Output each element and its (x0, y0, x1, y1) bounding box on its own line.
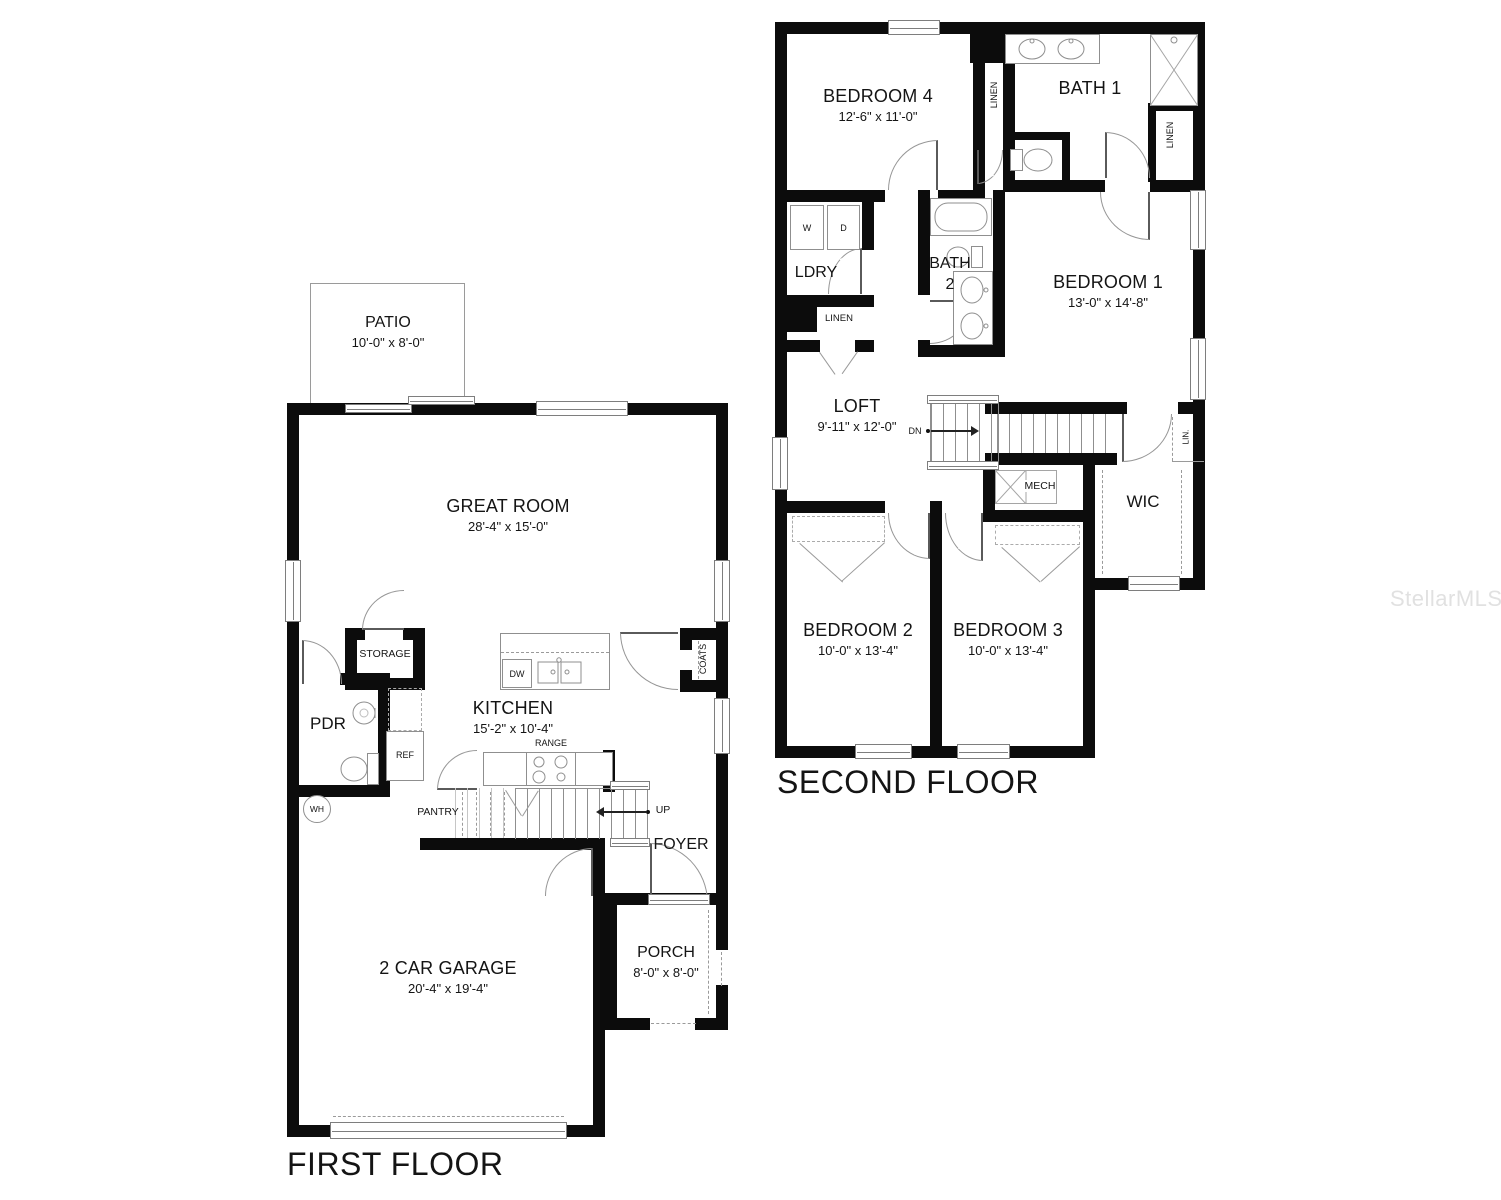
room-label-loft: LOFT (834, 396, 881, 417)
room-dims-bedroom1: 13'-0" x 14'-8" (1068, 295, 1148, 310)
tub-icon (930, 198, 992, 236)
water-heater-icon: WH (303, 795, 331, 823)
sink-icon (350, 698, 380, 728)
room-label-pdr: PDR (310, 714, 346, 734)
stellar-mls-watermark: StellarMLS (1390, 586, 1501, 612)
label-up: UP (656, 804, 671, 816)
porch-open-edge (708, 910, 710, 1014)
door-arc (945, 513, 983, 561)
closet-rod (1102, 470, 1104, 574)
wall (930, 513, 942, 758)
closet (995, 525, 1080, 545)
up-arrow-dot (646, 810, 650, 814)
label-lin: LIN. (1182, 430, 1191, 445)
bifold-door (819, 352, 835, 375)
wall (983, 510, 1083, 522)
room-label-foyer: FOYER (653, 836, 708, 854)
double-sink-icon (1005, 34, 1100, 64)
room-dims-great-room: 28'-4" x 15'-0" (468, 519, 548, 534)
room-label-kitchen: KITCHEN (473, 698, 553, 719)
door-arc (362, 590, 404, 630)
wall (1193, 22, 1205, 590)
room-label-patio: PATIO (365, 314, 411, 332)
bifold-door (841, 542, 885, 582)
room-label-porch: PORCH (637, 944, 695, 962)
sliding-door (408, 396, 475, 405)
door-arc (1105, 132, 1150, 178)
room-label-bedroom3: BEDROOM 3 (953, 620, 1063, 641)
wall (1003, 180, 1105, 192)
room-label-pantry: PANTRY (417, 806, 459, 818)
closet-rod (1181, 470, 1183, 574)
wall (403, 628, 425, 640)
window (888, 20, 940, 35)
door-arc (1122, 414, 1172, 462)
up-arrow (604, 811, 646, 813)
window (536, 401, 628, 416)
room-label-wic: WIC (1126, 492, 1159, 512)
lin-closet-shelf (1172, 461, 1204, 462)
wall (1178, 402, 1205, 414)
wall (716, 985, 728, 1030)
closet (792, 516, 885, 542)
label-mech: MECH (1025, 480, 1056, 492)
dishwasher-label: DW (510, 669, 525, 679)
chase (970, 33, 1007, 63)
dn-arrow-head (971, 426, 979, 436)
bifold-door (842, 351, 858, 374)
window (1190, 338, 1206, 400)
room-label-bedroom2: BEDROOM 2 (803, 620, 913, 641)
toilet-icon (338, 750, 380, 788)
pantry-shelf (476, 792, 478, 836)
label-linen: LINEN (989, 82, 999, 109)
door-arc (620, 632, 678, 690)
wall (605, 1018, 650, 1030)
wall (993, 190, 1005, 357)
wall (593, 838, 605, 1137)
window (772, 437, 788, 490)
stairs-landing (930, 400, 999, 466)
pantry-shelf (462, 792, 464, 836)
room-dims-garage: 20'-4" x 19'-4" (408, 981, 488, 996)
garage-door-track (333, 1116, 564, 1118)
range-icon (526, 752, 576, 786)
window (714, 560, 730, 622)
washer: W (790, 205, 824, 250)
wall (1083, 465, 1095, 758)
label-linen: LINEN (825, 313, 853, 324)
wall (862, 190, 874, 250)
wall (930, 501, 942, 513)
wall (775, 340, 820, 352)
bifold-door (1001, 547, 1040, 583)
dryer-label: D (840, 223, 847, 233)
window (1190, 190, 1206, 250)
chase (775, 298, 817, 332)
up-arrow-head (596, 807, 604, 817)
window (1128, 576, 1180, 591)
wall (287, 403, 299, 1137)
shower-icon (1150, 34, 1198, 106)
sliding-door (345, 404, 412, 413)
room-dims-patio: 10'-0" x 8'-0" (352, 335, 425, 350)
room-dims-bedroom4: 12'-6" x 11'-0" (839, 109, 918, 124)
label-linen: LINEN (1165, 122, 1175, 149)
wall (918, 345, 1005, 357)
washer-label: W (803, 223, 812, 233)
cabinet (388, 688, 422, 731)
porch-open-edge (721, 952, 723, 986)
window (285, 560, 301, 622)
floor-plan-image: DW WH PATIO 10'-0" x 8'-0" GREA (0, 0, 1501, 1200)
wall (420, 838, 605, 850)
dn-arrow (931, 430, 971, 432)
pantry-shelf (490, 792, 492, 836)
lin-closet-front (1172, 417, 1174, 461)
room-dims-bedroom3: 10'-0" x 13'-4" (968, 643, 1048, 658)
bifold-door (799, 543, 843, 583)
room-label-bath2-line1: BATH (929, 255, 970, 273)
water-heater-label: WH (310, 804, 324, 814)
door-arc (977, 150, 1003, 184)
door-arc (888, 513, 930, 559)
room-label-bedroom1: BEDROOM 1 (1053, 272, 1163, 293)
label-ref: REF (396, 750, 414, 760)
wall (855, 340, 874, 352)
room-label-storage: STORAGE (359, 648, 410, 660)
stairs-down (997, 414, 1117, 453)
dn-arrow-dot (926, 429, 930, 433)
stair-rail (927, 461, 999, 470)
pantry-shelf (504, 792, 506, 836)
kitchen-sink-icon (536, 655, 584, 689)
room-label-bath1: BATH 1 (1059, 78, 1122, 99)
room-label-coats: COATS (698, 644, 708, 674)
room-label-garage: 2 CAR GARAGE (379, 958, 516, 979)
first-floor-title: FIRST FLOOR (287, 1146, 503, 1183)
bifold-door (1041, 546, 1080, 582)
wall (985, 402, 1117, 414)
stair-rail (610, 838, 650, 847)
room-dims-kitchen: 15'-2" x 10'-4" (473, 721, 553, 736)
door-arc (302, 640, 342, 684)
door-arc (437, 750, 477, 790)
door-arc (888, 140, 938, 190)
room-label-great-room: GREAT ROOM (446, 496, 569, 517)
stairs-under (455, 788, 515, 838)
wall (716, 403, 728, 905)
door-threshold (648, 894, 710, 905)
room-label-bedroom4: BEDROOM 4 (823, 86, 933, 107)
wall (775, 22, 787, 758)
room-dims-bedroom2: 10'-0" x 13'-4" (818, 643, 898, 658)
second-floor-title: SECOND FLOOR (777, 764, 1039, 801)
wall (1062, 132, 1070, 184)
wall (680, 628, 692, 650)
porch-open-edge (651, 1023, 696, 1025)
wall (1150, 180, 1193, 192)
wall (680, 670, 692, 692)
door-arc (1100, 192, 1150, 240)
window (855, 744, 912, 759)
island-counter-line (501, 652, 609, 654)
double-sink-icon (953, 271, 993, 345)
dryer: D (827, 205, 860, 250)
wall (605, 905, 617, 1030)
garage-door (330, 1122, 567, 1139)
wall (1117, 402, 1127, 414)
room-label-ldry: LDRY (795, 264, 837, 282)
wall (775, 501, 885, 513)
door-arc (545, 848, 593, 896)
window (714, 698, 730, 754)
stair-rail (927, 395, 999, 404)
room-label-bath2-line2: 2 (946, 276, 955, 294)
toilet-icon (1010, 146, 1056, 174)
window (957, 744, 1010, 759)
room-dims-loft: 9'-11" x 12'-0" (818, 419, 897, 434)
dishwasher: DW (502, 659, 532, 688)
stair-rail (610, 781, 650, 790)
wall (985, 453, 1117, 465)
wall (918, 190, 930, 295)
room-dims-porch: 8'-0" x 8'-0" (633, 965, 699, 980)
label-dn: DN (909, 426, 922, 436)
label-range: RANGE (535, 738, 567, 748)
wall (716, 905, 728, 950)
